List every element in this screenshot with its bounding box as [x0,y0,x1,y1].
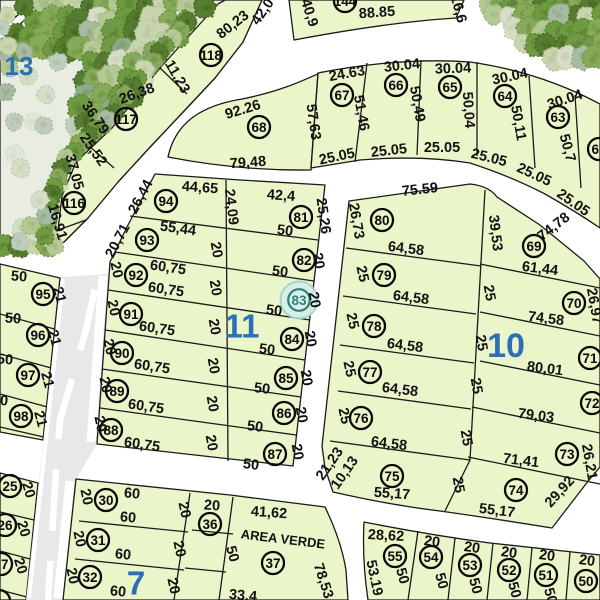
svg-text:44,65: 44,65 [181,179,218,197]
svg-text:75: 75 [384,469,400,484]
svg-text:20: 20 [90,414,109,433]
svg-text:27: 27 [0,557,9,572]
svg-text:72: 72 [584,396,599,411]
svg-text:65: 65 [442,80,458,95]
svg-text:74: 74 [508,483,524,498]
svg-text:20: 20 [204,357,223,376]
svg-text:30.04: 30.04 [435,60,472,77]
svg-text:50: 50 [253,380,271,398]
svg-text:50: 50 [271,263,289,281]
svg-text:20: 20 [202,434,221,453]
svg-text:11: 11 [225,308,260,345]
svg-text:10: 10 [487,327,525,365]
svg-text:25: 25 [457,429,476,448]
svg-text:13: 13 [5,51,34,81]
svg-text:84: 84 [284,332,300,347]
svg-text:20: 20 [95,375,114,394]
svg-text:66: 66 [388,78,404,93]
svg-text:20: 20 [106,260,125,279]
svg-text:25: 25 [352,264,371,283]
svg-text:50: 50 [265,302,283,320]
svg-text:37: 37 [265,556,280,571]
svg-text:25: 25 [467,377,486,396]
svg-text:98: 98 [13,409,29,424]
svg-text:20: 20 [205,318,224,337]
svg-text:86: 86 [276,406,292,421]
svg-text:20: 20 [169,539,188,558]
svg-text:79,48: 79,48 [229,154,266,172]
svg-text:20: 20 [69,529,88,548]
svg-text:20: 20 [288,443,307,462]
svg-text:73: 73 [559,447,575,462]
svg-text:60: 60 [109,583,126,600]
svg-text:95: 95 [35,287,51,302]
svg-text:96: 96 [30,328,46,343]
svg-text:62: 62 [591,142,600,157]
svg-text:87: 87 [267,447,282,462]
svg-text:20: 20 [76,487,95,506]
svg-text:7: 7 [127,565,145,600]
svg-text:68: 68 [251,120,267,135]
svg-text:97: 97 [20,368,35,383]
svg-text:117: 117 [115,112,137,127]
svg-text:85: 85 [278,371,294,386]
svg-text:144: 144 [334,0,357,9]
svg-text:25: 25 [2,479,18,494]
svg-text:25: 25 [334,406,353,425]
svg-text:20: 20 [463,539,481,557]
svg-text:55: 55 [387,549,403,564]
svg-text:80: 80 [374,213,389,228]
svg-text:25: 25 [449,476,468,495]
svg-text:52: 52 [501,563,516,578]
svg-text:20: 20 [305,291,324,310]
svg-text:67: 67 [334,88,349,103]
svg-text:76: 76 [353,411,369,426]
svg-text:53: 53 [462,558,478,573]
svg-text:50: 50 [0,392,9,409]
svg-text:36: 36 [202,517,218,532]
svg-text:33,4: 33,4 [228,587,258,600]
svg-text:116: 116 [63,196,85,211]
svg-text:60: 60 [114,546,131,563]
svg-text:71: 71 [582,351,598,366]
svg-text:41,62: 41,62 [250,504,287,522]
svg-text:50: 50 [10,268,27,285]
svg-text:50: 50 [0,351,14,368]
svg-text:55,17: 55,17 [373,485,410,503]
svg-text:92: 92 [128,268,143,283]
svg-text:50: 50 [578,574,593,589]
svg-text:20: 20 [62,566,81,585]
svg-text:32: 32 [82,570,97,585]
svg-text:50: 50 [258,341,276,359]
svg-text:50: 50 [276,222,294,240]
svg-text:20: 20 [297,369,316,388]
svg-text:25: 25 [339,359,358,378]
svg-text:79: 79 [376,268,391,283]
svg-text:25: 25 [342,311,361,330]
svg-text:20: 20 [203,497,220,514]
svg-text:54: 54 [423,550,439,565]
svg-text:50,04: 50,04 [459,91,477,128]
svg-text:20: 20 [103,298,122,317]
svg-text:20: 20 [423,533,441,551]
svg-text:70: 70 [566,296,581,311]
svg-text:20: 20 [538,547,556,565]
svg-text:20: 20 [292,406,311,425]
svg-text:60: 60 [119,509,136,526]
svg-text:25: 25 [480,284,499,303]
svg-text:31: 31 [90,533,106,548]
svg-text:88.85: 88.85 [358,4,395,22]
svg-text:20: 20 [174,500,193,519]
svg-text:20: 20 [578,552,596,570]
svg-text:20: 20 [206,279,225,298]
svg-text:20: 20 [203,395,222,414]
svg-text:50: 50 [242,456,260,474]
svg-text:94: 94 [158,194,174,209]
svg-text:20: 20 [207,241,226,260]
svg-text:42,4: 42,4 [266,187,295,205]
svg-text:118: 118 [200,48,222,63]
svg-text:20: 20 [163,576,182,595]
svg-text:26: 26 [0,518,13,533]
svg-text:91: 91 [123,307,139,322]
svg-text:64: 64 [497,89,513,104]
svg-text:93: 93 [139,233,155,248]
svg-text:81: 81 [293,210,309,225]
svg-text:83: 83 [291,293,307,308]
svg-text:25.05: 25.05 [424,140,460,156]
svg-text:28,62: 28,62 [367,527,404,545]
svg-text:60: 60 [123,485,140,502]
svg-text:20: 20 [301,330,320,349]
svg-text:20: 20 [500,544,518,562]
svg-text:50: 50 [4,310,21,327]
svg-text:20: 20 [99,337,118,356]
svg-text:30: 30 [98,493,113,508]
svg-text:69: 69 [526,239,541,254]
svg-text:78: 78 [366,319,382,334]
svg-text:51: 51 [538,568,554,583]
svg-text:50: 50 [246,418,264,436]
svg-text:20: 20 [309,252,328,271]
svg-text:77: 77 [362,365,377,380]
